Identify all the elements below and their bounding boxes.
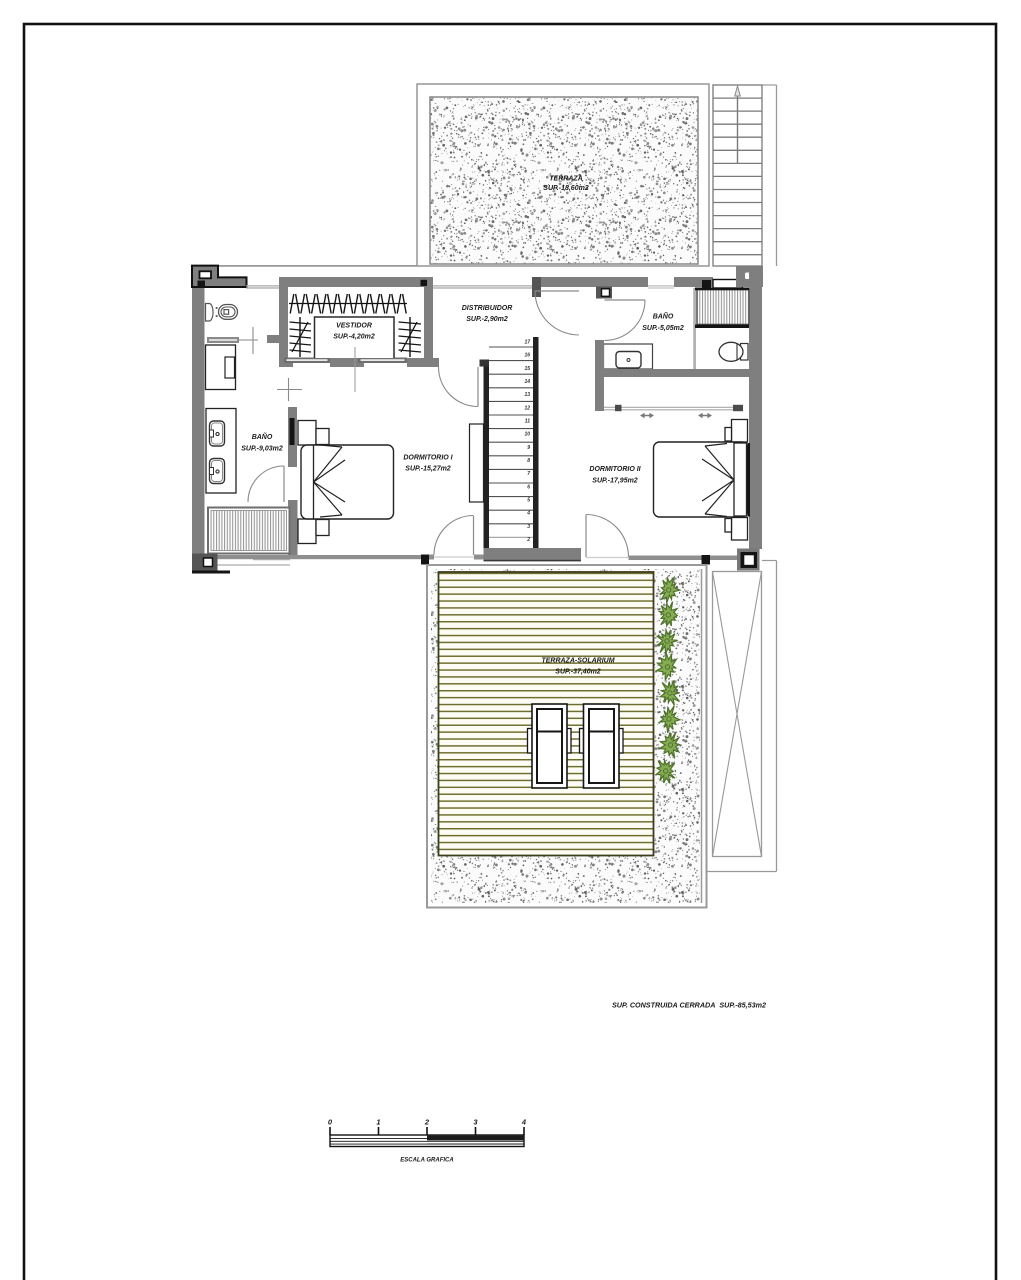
svg-text:9: 9 bbox=[527, 445, 530, 451]
svg-text:TERRAZA-SOLARIUM: TERRAZA-SOLARIUM bbox=[541, 658, 614, 665]
svg-text:SUP.-5,05m2: SUP.-5,05m2 bbox=[642, 325, 684, 332]
svg-text:5: 5 bbox=[527, 498, 530, 504]
svg-text:BAÑO: BAÑO bbox=[252, 432, 273, 441]
svg-text:SUP.-9,03m2: SUP.-9,03m2 bbox=[241, 446, 283, 453]
svg-text:1: 1 bbox=[376, 1118, 380, 1127]
svg-text:VESTIDOR: VESTIDOR bbox=[336, 323, 372, 330]
svg-text:TERRAZA: TERRAZA bbox=[549, 176, 582, 183]
svg-text:2: 2 bbox=[424, 1118, 430, 1127]
svg-text:6: 6 bbox=[527, 484, 530, 490]
svg-text:SUP.-37,40m2: SUP.-37,40m2 bbox=[555, 669, 601, 676]
svg-text:8: 8 bbox=[527, 458, 530, 464]
svg-text:3: 3 bbox=[527, 524, 530, 530]
svg-text:10: 10 bbox=[524, 432, 530, 438]
svg-text:17: 17 bbox=[524, 340, 530, 346]
svg-text:11: 11 bbox=[525, 419, 530, 425]
svg-text:4: 4 bbox=[521, 1118, 527, 1127]
svg-text:SUP.-18,60m2: SUP.-18,60m2 bbox=[543, 185, 589, 192]
svg-text:SUP.-4,20m2: SUP.-4,20m2 bbox=[333, 334, 375, 341]
svg-text:SUP.-2,90m2: SUP.-2,90m2 bbox=[466, 316, 508, 323]
svg-text:DORMITORIO I: DORMITORIO I bbox=[403, 455, 453, 462]
svg-text:4: 4 bbox=[526, 511, 530, 517]
svg-text:DORMITORIO II: DORMITORIO II bbox=[589, 466, 641, 473]
svg-text:SUP.-15,27m2: SUP.-15,27m2 bbox=[405, 466, 451, 473]
svg-text:7: 7 bbox=[527, 471, 530, 477]
svg-text:12: 12 bbox=[524, 405, 530, 411]
svg-text:SUP. CONSTRUIDA CERRADA SUP.-: SUP. CONSTRUIDA CERRADA SUP.-85,53m2 bbox=[612, 1001, 766, 1010]
svg-text:15: 15 bbox=[524, 366, 530, 372]
svg-text:ESCALA GRAFICA: ESCALA GRAFICA bbox=[400, 1158, 453, 1164]
svg-text:2: 2 bbox=[526, 537, 530, 543]
svg-text:0: 0 bbox=[328, 1118, 333, 1127]
svg-text:14: 14 bbox=[524, 379, 530, 385]
svg-text:3: 3 bbox=[473, 1118, 478, 1127]
svg-text:13: 13 bbox=[524, 392, 530, 398]
svg-text:SUP.-17,95m2: SUP.-17,95m2 bbox=[592, 478, 638, 485]
svg-text:16: 16 bbox=[524, 353, 530, 359]
svg-text:DISTRIBUIDOR: DISTRIBUIDOR bbox=[462, 305, 513, 312]
svg-text:BAÑO: BAÑO bbox=[653, 312, 674, 321]
